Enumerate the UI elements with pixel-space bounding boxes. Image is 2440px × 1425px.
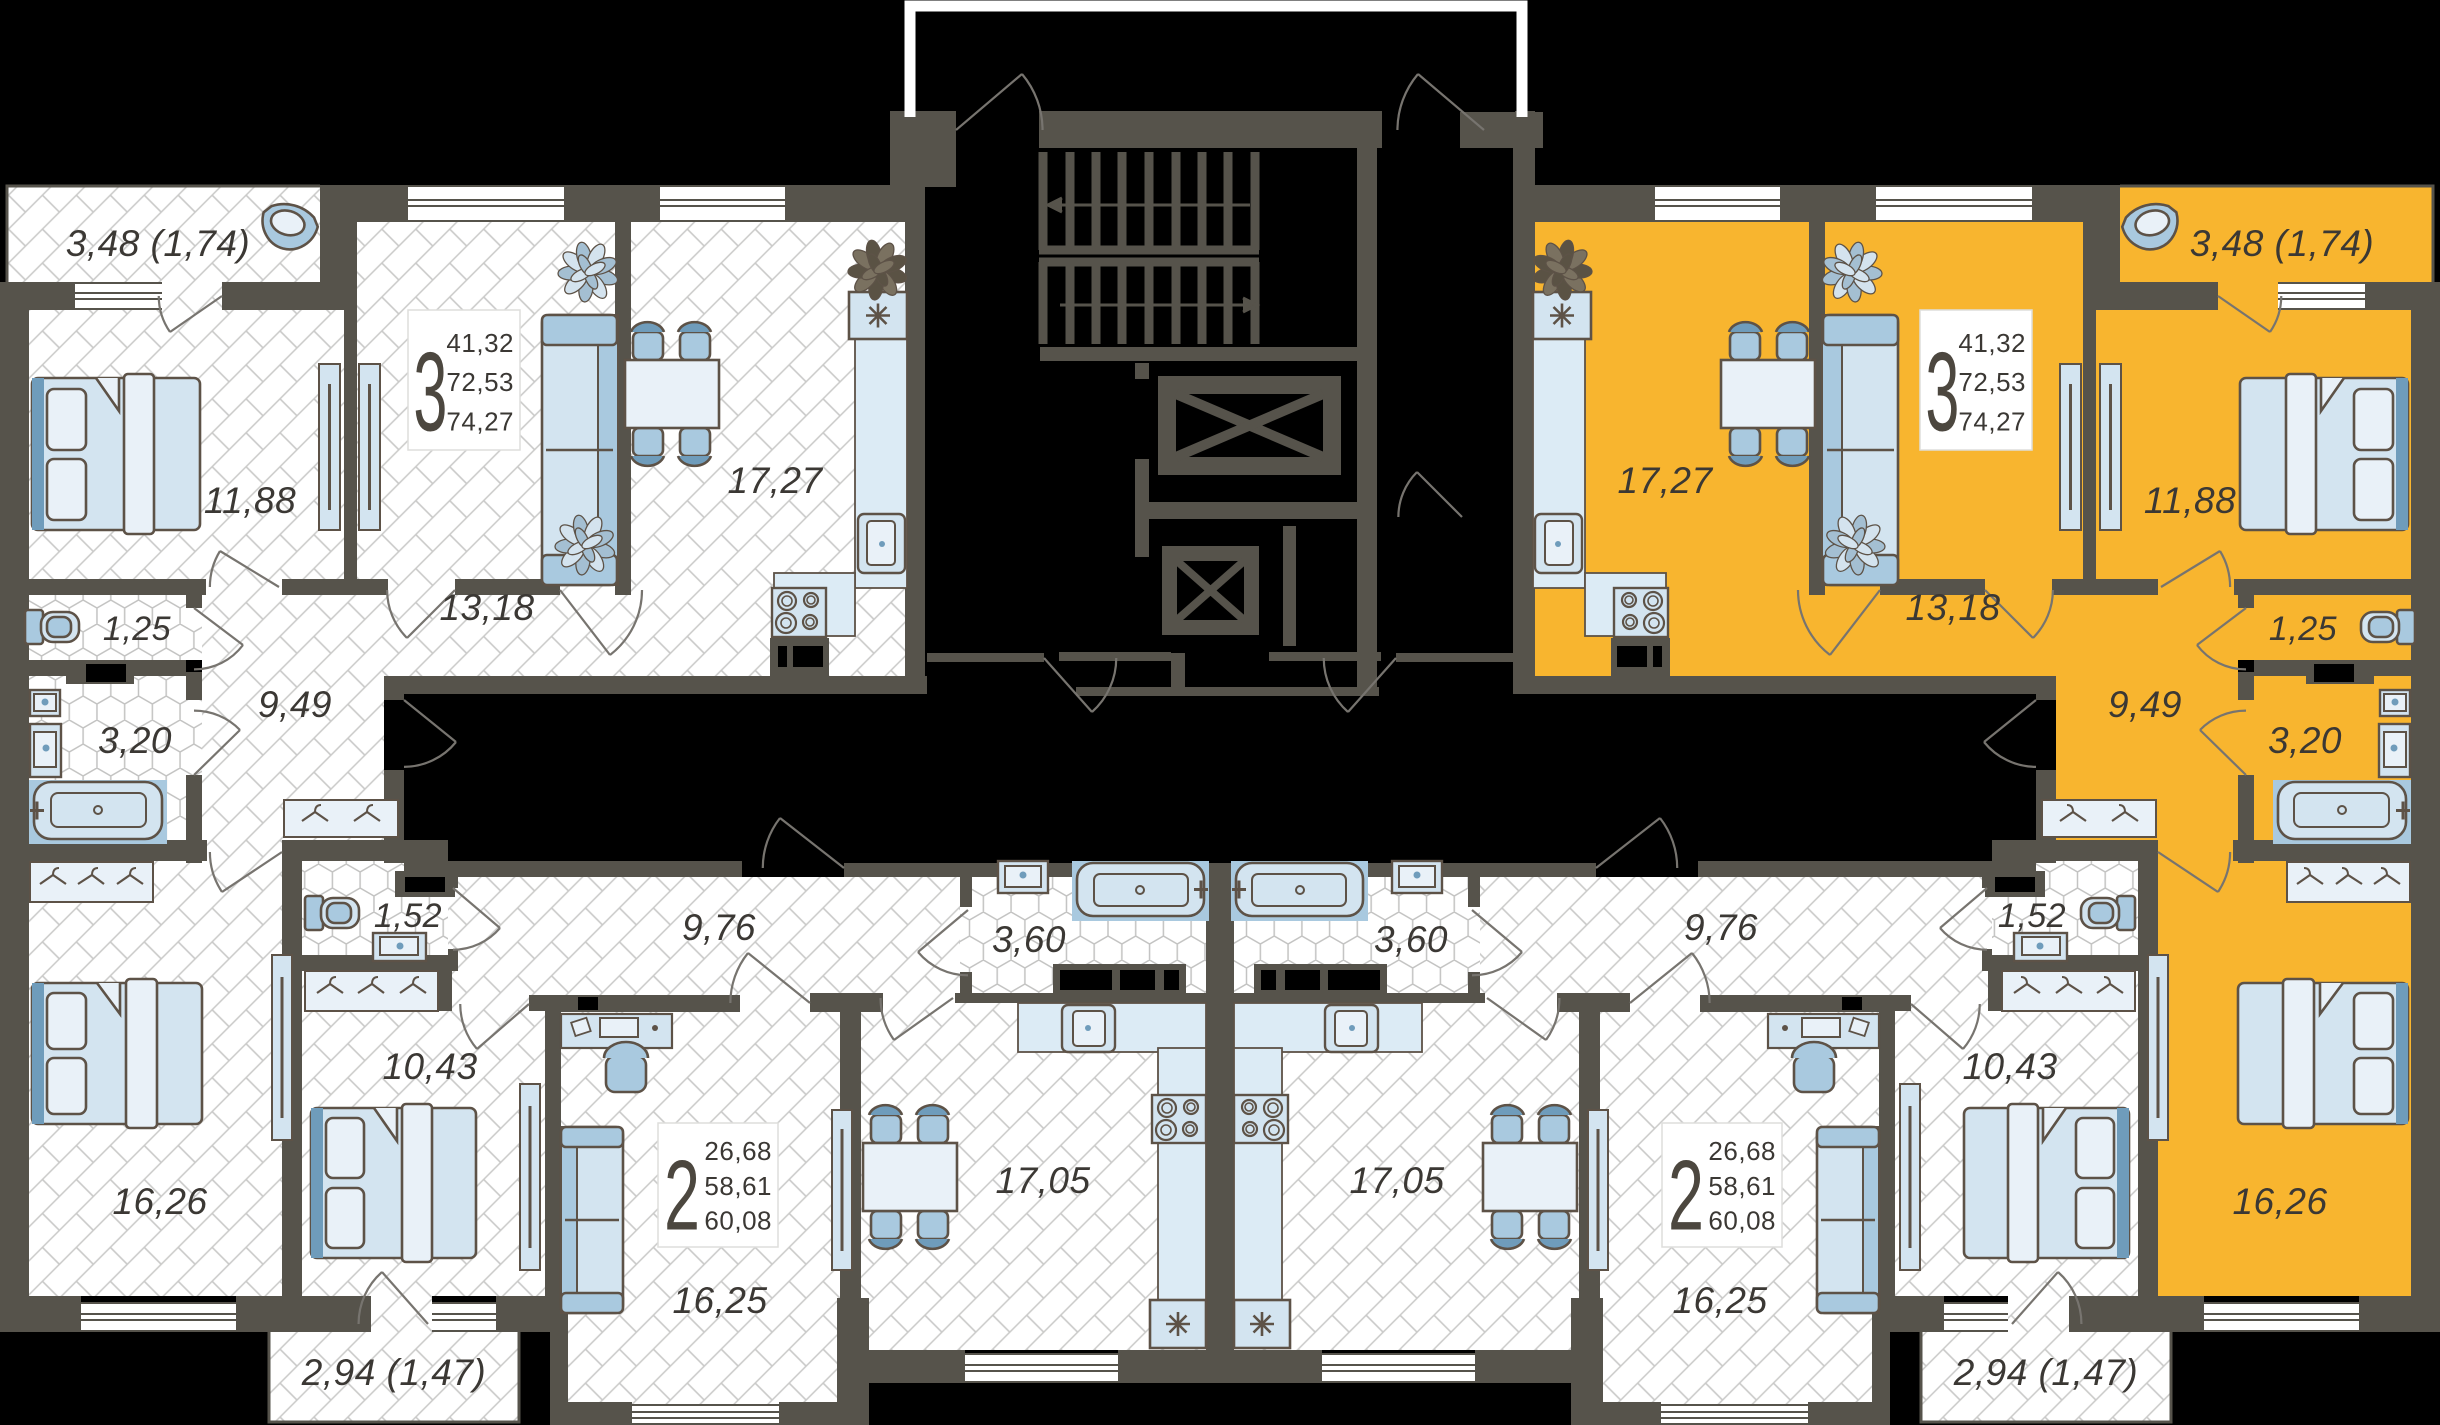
svg-text:2: 2 xyxy=(664,1140,700,1251)
svg-text:17,27: 17,27 xyxy=(727,460,823,501)
svg-text:17,05: 17,05 xyxy=(1349,1160,1444,1201)
svg-text:2,94 (1,47): 2,94 (1,47) xyxy=(1953,1352,2138,1393)
svg-text:72,53: 72,53 xyxy=(1958,367,2026,397)
svg-text:41,32: 41,32 xyxy=(446,328,514,358)
svg-text:3,48 (1,74): 3,48 (1,74) xyxy=(66,223,250,264)
svg-text:9,76: 9,76 xyxy=(682,907,756,948)
svg-text:17,05: 17,05 xyxy=(995,1160,1090,1201)
svg-text:9,76: 9,76 xyxy=(1684,907,1758,948)
svg-text:58,61: 58,61 xyxy=(1708,1171,1776,1201)
svg-text:3,20: 3,20 xyxy=(98,720,172,761)
svg-text:1,52: 1,52 xyxy=(1998,897,2066,935)
svg-text:16,25: 16,25 xyxy=(672,1280,767,1321)
svg-text:3,48 (1,74): 3,48 (1,74) xyxy=(2190,223,2374,264)
svg-text:2,94 (1,47): 2,94 (1,47) xyxy=(301,1352,486,1393)
svg-text:11,88: 11,88 xyxy=(204,480,296,521)
svg-text:3: 3 xyxy=(413,329,447,454)
svg-text:13,18: 13,18 xyxy=(1905,587,2000,628)
svg-text:60,08: 60,08 xyxy=(704,1206,772,1236)
svg-text:74,27: 74,27 xyxy=(1958,406,2026,436)
svg-text:60,08: 60,08 xyxy=(1708,1206,1776,1236)
svg-text:3,60: 3,60 xyxy=(992,919,1066,960)
svg-text:26,68: 26,68 xyxy=(1708,1136,1776,1166)
svg-text:74,27: 74,27 xyxy=(446,406,514,436)
svg-text:26,68: 26,68 xyxy=(704,1136,772,1166)
svg-text:72,53: 72,53 xyxy=(446,367,514,397)
svg-text:17,27: 17,27 xyxy=(1617,460,1713,501)
svg-text:16,25: 16,25 xyxy=(1672,1280,1767,1321)
svg-text:9,49: 9,49 xyxy=(258,684,332,725)
svg-text:2: 2 xyxy=(1668,1140,1704,1251)
svg-text:1,52: 1,52 xyxy=(374,897,442,935)
svg-text:3,20: 3,20 xyxy=(2268,720,2342,761)
svg-text:13,18: 13,18 xyxy=(439,587,534,628)
svg-text:41,32: 41,32 xyxy=(1958,328,2026,358)
svg-text:3,60: 3,60 xyxy=(1374,919,1448,960)
svg-text:1,25: 1,25 xyxy=(2269,610,2337,648)
svg-text:1,25: 1,25 xyxy=(103,610,171,648)
svg-text:3: 3 xyxy=(1925,329,1959,454)
svg-text:16,26: 16,26 xyxy=(2232,1181,2327,1222)
svg-text:16,26: 16,26 xyxy=(112,1181,207,1222)
svg-text:58,61: 58,61 xyxy=(704,1171,772,1201)
svg-text:9,49: 9,49 xyxy=(2108,684,2182,725)
svg-text:10,43: 10,43 xyxy=(382,1046,477,1087)
svg-text:10,43: 10,43 xyxy=(1962,1046,2057,1087)
svg-text:11,88: 11,88 xyxy=(2144,480,2236,521)
